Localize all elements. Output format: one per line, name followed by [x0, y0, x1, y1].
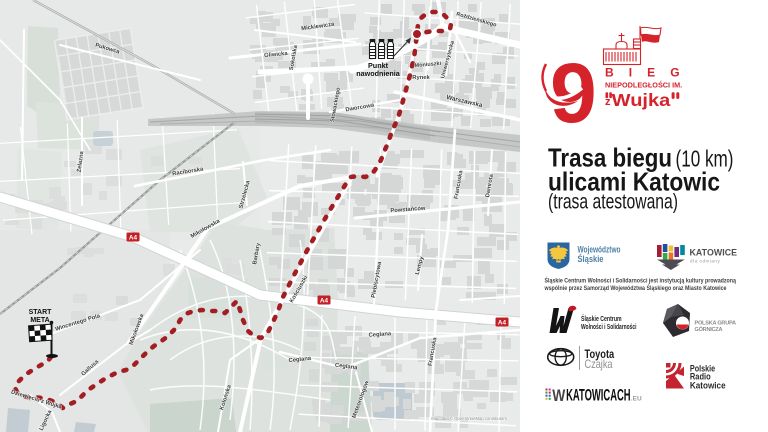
- svg-text:Rynek: Rynek: [412, 75, 430, 81]
- svg-text:META: META: [30, 317, 49, 324]
- svg-text:Wujka: Wujka: [612, 90, 671, 110]
- svg-text:wspólnie przez Samorząd Wojewó: wspólnie przez Samorząd Województwa Śląs…: [544, 283, 727, 292]
- svg-text:B I E G: B I E G: [605, 66, 680, 80]
- svg-text:W: W: [552, 386, 566, 405]
- svg-text:dla odmiany: dla odmiany: [690, 259, 720, 264]
- svg-text:KATOWICE: KATOWICE: [690, 248, 738, 258]
- svg-text:Wolności i Solidarności: Wolności i Solidarności: [581, 324, 637, 331]
- svg-text:A4: A4: [129, 234, 138, 241]
- svg-text:GÓRNICZA: GÓRNICZA: [695, 325, 723, 333]
- svg-text:Śląskie: Śląskie: [578, 253, 604, 264]
- svg-text:START: START: [29, 309, 53, 316]
- svg-text:A4: A4: [320, 297, 329, 304]
- svg-text:Katowice: Katowice: [690, 380, 726, 391]
- svg-text:9: 9: [550, 46, 597, 135]
- svg-text:(trasa atestowana): (trasa atestowana): [548, 191, 678, 214]
- svg-text:Map data © OpenStreetMap contr: Map data © OpenStreetMap contributors: [431, 416, 506, 421]
- svg-text:z: z: [605, 96, 611, 108]
- svg-text:NIEPODLEGŁOŚCI IM.: NIEPODLEGŁOŚCI IM.: [605, 81, 682, 90]
- svg-text:Śląskie Centrum Wolności i Sol: Śląskie Centrum Wolności i Solidarności …: [545, 275, 737, 284]
- svg-text:Czajka: Czajka: [585, 357, 613, 371]
- svg-text:POLSKA GRUPA: POLSKA GRUPA: [695, 320, 737, 326]
- svg-text:nawodnienia: nawodnienia: [356, 69, 401, 78]
- svg-text:KATOWICACH: KATOWICACH: [566, 386, 631, 404]
- svg-text:Śląskie Centrum: Śląskie Centrum: [581, 314, 622, 323]
- svg-text:.EU: .EU: [631, 395, 642, 402]
- svg-text:A4: A4: [498, 319, 507, 326]
